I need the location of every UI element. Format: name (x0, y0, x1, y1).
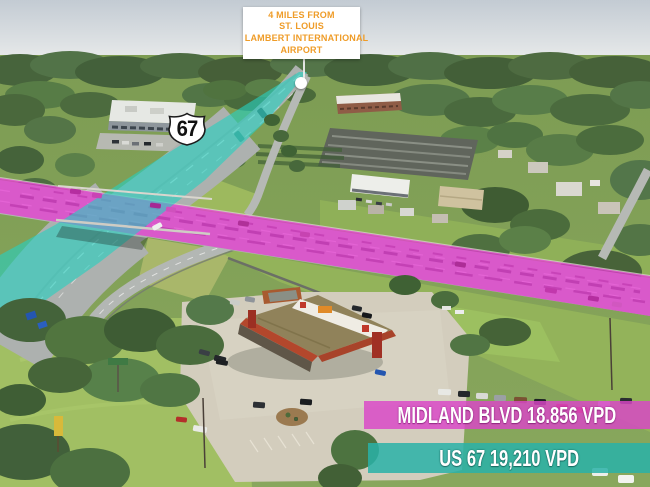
us67-vpd-label: US 67 19,210 VPD (368, 443, 650, 473)
callout-line-3: LAMBERT INTERNATIONAL (245, 33, 358, 45)
callout-location-dot-icon (295, 77, 307, 89)
us-67-route-shield: 67 (166, 112, 208, 146)
midland-blvd-vpd-text: MIDLAND BLVD 18.856 VPD (398, 402, 617, 429)
airport-distance-callout: 4 MILES FROM ST. LOUIS LAMBERT INTERNATI… (243, 7, 360, 59)
midland-blvd-vpd-label: MIDLAND BLVD 18.856 VPD (364, 401, 650, 429)
callout-leader-line (303, 59, 305, 79)
aerial-site-photo: 4 MILES FROM ST. LOUIS LAMBERT INTERNATI… (0, 0, 650, 487)
us67-vpd-text: US 67 19,210 VPD (439, 445, 579, 472)
callout-line-2: ST. LOUIS (245, 21, 358, 33)
callout-line-4: AIRPORT (245, 45, 358, 57)
callout-line-1: 4 MILES FROM (245, 10, 358, 22)
route-shield-number: 67 (168, 114, 207, 144)
